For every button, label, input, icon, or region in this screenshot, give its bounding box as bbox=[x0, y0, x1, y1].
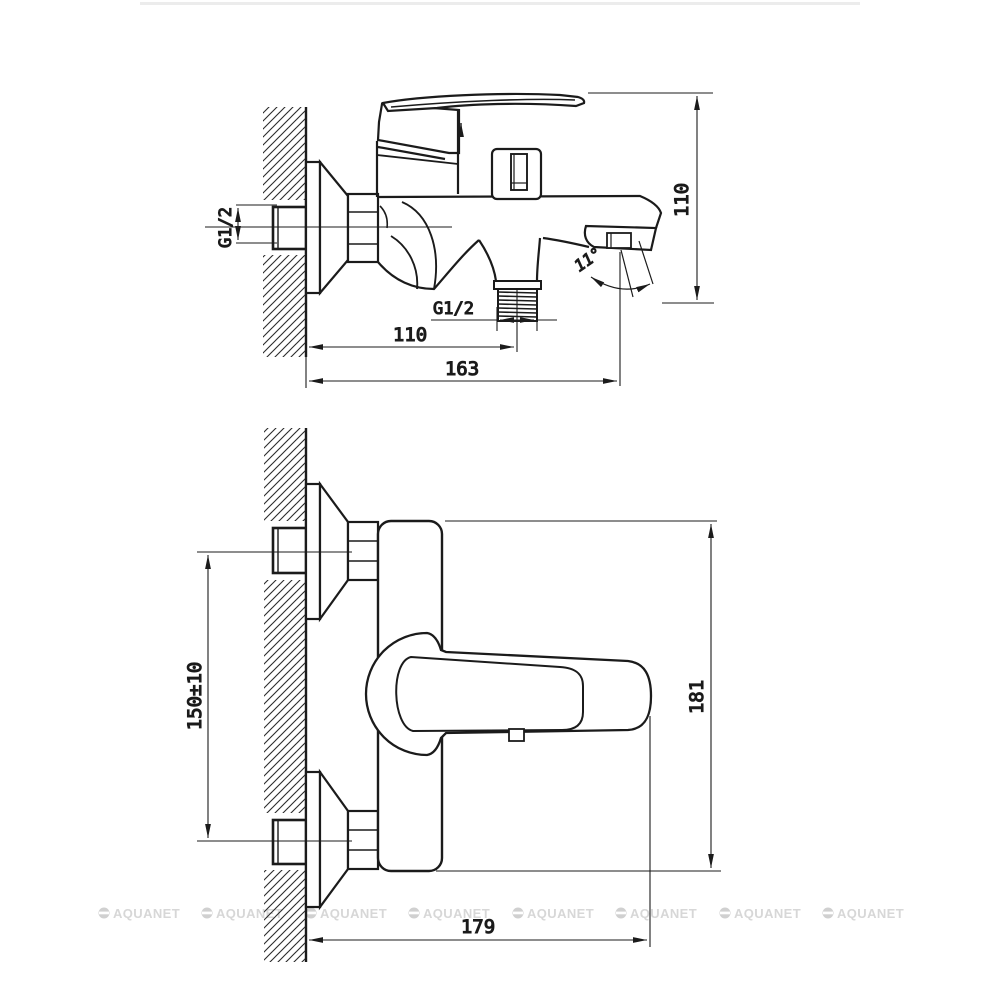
dim-shower-thread-label: G1/2 bbox=[433, 299, 474, 319]
dim-body-height-label: 110 bbox=[671, 183, 693, 217]
wall-section-front-view bbox=[263, 428, 307, 962]
dim-hole-centers: 150±10 bbox=[184, 555, 208, 838]
dim-overall-width-label: 179 bbox=[461, 916, 495, 938]
wall-pipe-block bbox=[273, 207, 306, 249]
connection-nut bbox=[348, 194, 378, 262]
connection-nut-top bbox=[348, 522, 378, 580]
dim-total-projection-label: 163 bbox=[445, 358, 479, 380]
dim-hole-centers-label: 150±10 bbox=[184, 662, 206, 731]
dim-wall-thread-label: G1/2 bbox=[216, 207, 236, 248]
handle-front-detail bbox=[509, 729, 524, 741]
technical-drawing: G1/2 110 G1/2 bbox=[0, 0, 1000, 1000]
lever-handle-front bbox=[366, 633, 651, 755]
wall-escutcheon-bottom bbox=[306, 772, 378, 907]
top-view-side: G1/2 110 G1/2 bbox=[205, 93, 714, 388]
front-view: 150±10 181 179 bbox=[184, 428, 721, 962]
dim-shower-thread: G1/2 bbox=[431, 299, 557, 331]
handle-base bbox=[377, 104, 461, 197]
lever-handle-side bbox=[383, 94, 584, 111]
wall-pipe-block-top bbox=[273, 528, 306, 573]
connection-nut-bottom bbox=[348, 811, 378, 869]
dim-total-projection: 163 bbox=[309, 252, 620, 386]
diverter-knob bbox=[492, 149, 541, 199]
faucet-body-side bbox=[377, 94, 661, 321]
dim-wall-to-shower-label: 110 bbox=[393, 324, 427, 346]
shower-outlet-funnel-right bbox=[537, 238, 540, 281]
wall-pipe-block-bottom bbox=[273, 820, 306, 864]
shower-outlet-funnel-left bbox=[479, 240, 496, 281]
dim-wall-to-shower: 110 bbox=[306, 288, 517, 388]
dim-overall-height-label: 181 bbox=[686, 680, 708, 714]
